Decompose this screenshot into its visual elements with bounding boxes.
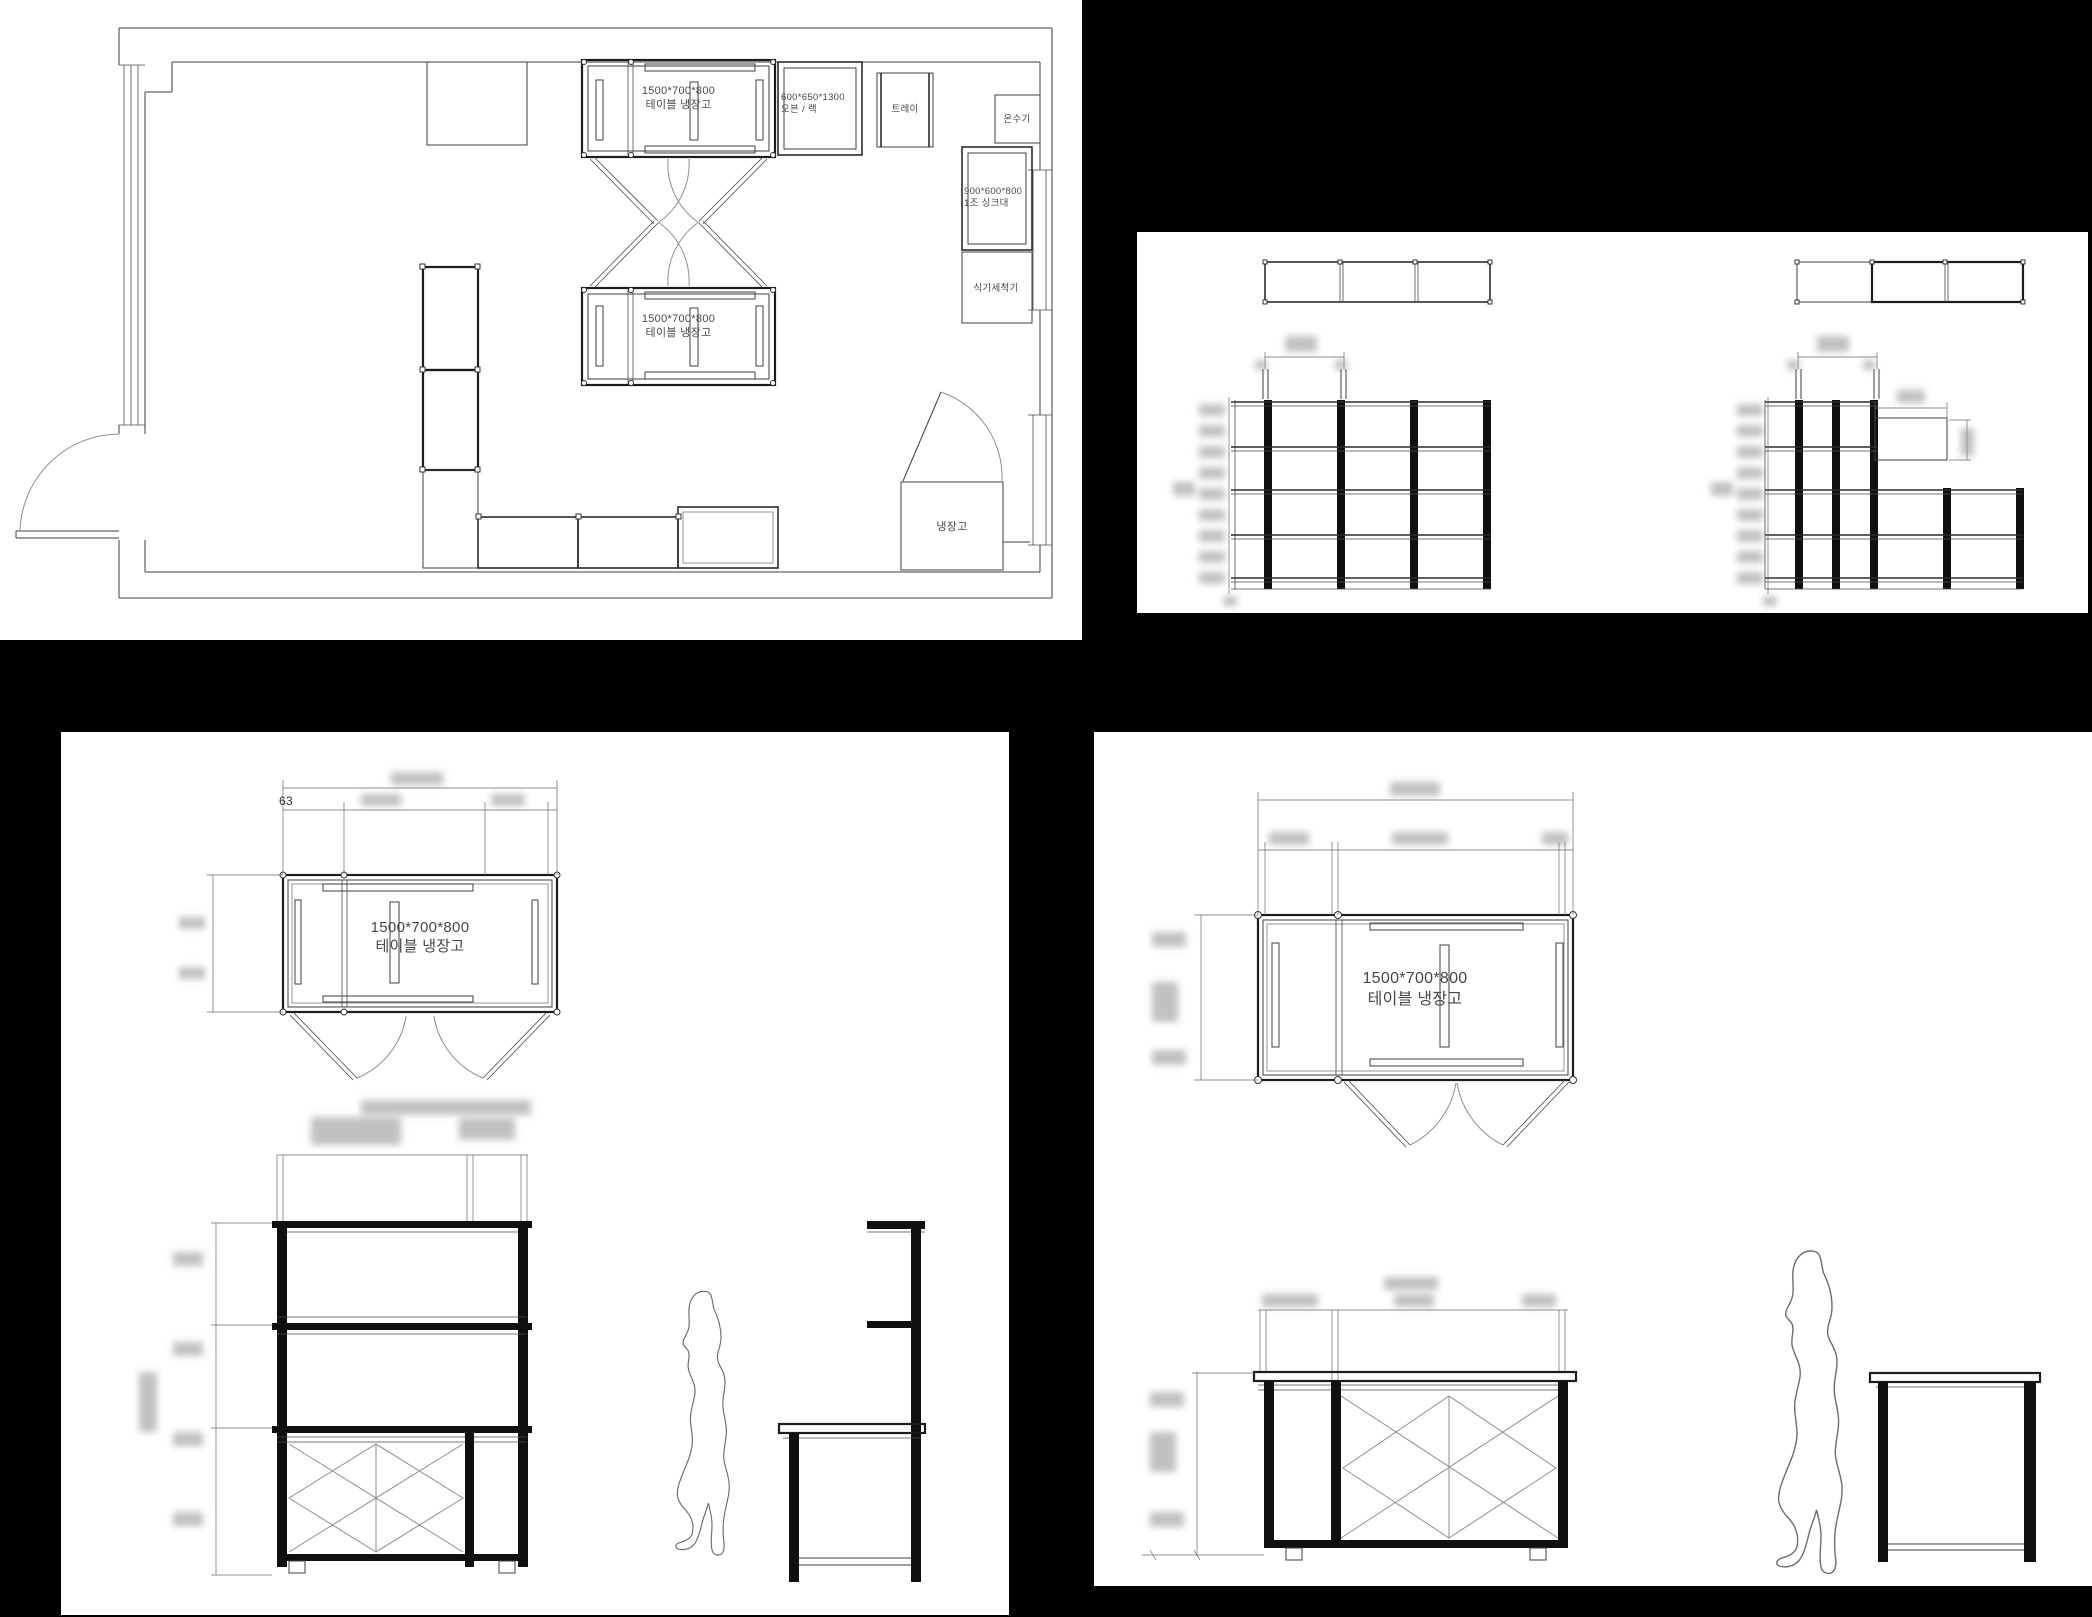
shelving-elevation-drawing	[1137, 232, 2088, 613]
shelving-elevation-sheet	[1137, 232, 2088, 613]
label-sink: 900*600*800 1조 싱크대	[964, 186, 1032, 210]
label-line: 900*600*800	[964, 186, 1032, 198]
post-dim-detail-left	[1255, 336, 1347, 399]
plan-dimensions	[179, 772, 557, 1012]
label-line: 600*650*1300	[781, 92, 861, 104]
label-table-fridge-detail-left: 1500*700*800 테이블 냉장고	[330, 918, 510, 956]
person-silhouette	[676, 1291, 729, 1555]
front-elevation	[1254, 1277, 1576, 1560]
label-line: 테이블 냉장고	[582, 326, 775, 340]
dim-chain-left	[1173, 397, 1237, 606]
wall-cabinet	[427, 62, 527, 145]
l-counter	[420, 264, 778, 568]
side-table-elevation	[1870, 1373, 2040, 1562]
left-window	[119, 65, 145, 425]
label-tray: 트레이	[877, 104, 933, 116]
label-oven-rack: 600*650*1300 오븐 / 랙	[781, 92, 861, 116]
label-line: 테이블 냉장고	[582, 98, 775, 112]
refrigerator-plan	[901, 392, 1030, 570]
label-line: 1조 싱크대	[964, 198, 1032, 210]
label-dishwasher: 식기세척기	[958, 283, 1034, 295]
worktop-dim-detail	[1875, 390, 1974, 460]
entry-door-swing	[16, 434, 119, 538]
floor-plan-drawing	[0, 0, 1082, 640]
table-fridge-middle-plan	[582, 221, 776, 386]
detail-sheet-left: 63 1500*700*800 테이블 냉장고	[61, 732, 1009, 1615]
label-line: 테이블 냉장고	[330, 937, 510, 956]
label-line: 1500*700*800	[582, 84, 775, 98]
shelving-elevation-left	[1231, 400, 1491, 589]
elevation-dim-chain	[139, 1223, 272, 1575]
floor-plan-sheet: 1500*700*800 테이블 냉장고 600*650*1300 오븐 / 랙…	[0, 0, 1082, 640]
detail-drawing-left	[61, 732, 1009, 1615]
label-water-heater: 온수기	[993, 114, 1041, 126]
label-table-fridge-top: 1500*700*800 테이블 냉장고	[582, 84, 775, 112]
label-line: 1500*700*800	[582, 312, 775, 326]
dim-label-63: 63	[269, 794, 303, 808]
diamond-brace	[289, 1444, 463, 1552]
side-elevation	[779, 1221, 925, 1582]
label-line: 오븐 / 랙	[781, 104, 861, 116]
post-dim-detail-right	[1787, 336, 1879, 399]
plan-dimensions	[1152, 782, 1573, 1080]
shelf-plan-strip-right	[1795, 260, 2025, 304]
plan-view	[1255, 912, 1577, 1148]
dim-chain-right	[1711, 397, 1777, 606]
label-line: 1500*700*800	[330, 918, 510, 937]
person-silhouette	[1777, 1251, 1842, 1573]
detail-sheet-right: 1500*700*800 테이블 냉장고	[1094, 732, 2092, 1586]
label-line: 테이블 냉장고	[1325, 989, 1505, 1010]
plan-view	[280, 872, 560, 1080]
shelving-elevation-right	[1765, 400, 2024, 589]
detail-drawing-right	[1094, 732, 2092, 1586]
label-table-fridge-detail-right: 1500*700*800 테이블 냉장고	[1325, 968, 1505, 1010]
front-elevation	[272, 1100, 532, 1573]
label-table-fridge-middle: 1500*700*800 테이블 냉장고	[582, 312, 775, 340]
label-refrigerator: 냉장고	[901, 520, 1003, 534]
label-line: 1500*700*800	[1325, 968, 1505, 989]
shelf-plan-strip-left	[1263, 260, 1492, 304]
diamond-brace	[1341, 1396, 1558, 1538]
elevation-dim-chain	[1142, 1372, 1264, 1560]
cad-collage: 1500*700*800 테이블 냉장고 600*650*1300 오븐 / 랙…	[0, 0, 2092, 1617]
